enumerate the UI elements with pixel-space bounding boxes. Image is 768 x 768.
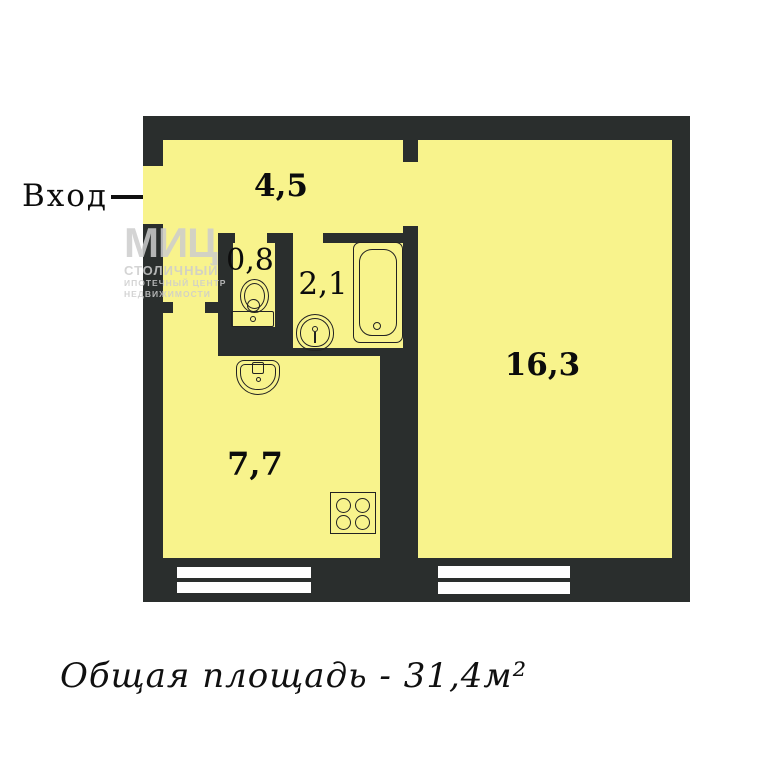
room-area-label-toilet: 0,8: [221, 246, 279, 276]
wall-top: [143, 116, 690, 140]
room-area-label-kitchen: 7,7: [215, 448, 295, 480]
wall-right: [672, 116, 690, 602]
window-kitchen: [177, 582, 311, 593]
kitchen-sink-tap-icon: [252, 362, 264, 374]
room-area-label-hallway: 4,5: [241, 171, 321, 202]
window-kitchen: [177, 567, 311, 578]
wall-left-above-entrance: [143, 140, 163, 166]
room-area-label-bathroom: 2,1: [292, 269, 354, 300]
toilet-tank-icon: [250, 316, 256, 322]
wall-bottom: [143, 558, 690, 602]
kitchen-sink-drain-icon: [256, 377, 261, 382]
bathroom-sink-tap-icon: [312, 326, 318, 332]
room-area-label-living: 16,3: [500, 350, 585, 381]
window-living: [438, 566, 570, 578]
stove-icon: [330, 492, 376, 534]
bathtub-drain-icon: [373, 322, 381, 330]
wall-kitchen-right: [380, 349, 403, 558]
wall-kitchen-door-jamb-right: [205, 302, 218, 313]
wall-toilet-bottom: [233, 327, 275, 356]
wall-living-left: [403, 226, 418, 558]
wall-living-door-jamb: [403, 140, 418, 162]
wall-kitchen-door-jamb-left: [163, 302, 173, 313]
wall-left-below-entrance: [143, 224, 163, 558]
bathroom-sink-tap-icon: [314, 332, 316, 343]
entrance-label: Вход: [22, 178, 108, 214]
floor-plan: Вход: [0, 0, 768, 768]
window-living: [438, 582, 570, 594]
total-area-caption: Общая площадь - 31,4м²: [60, 656, 527, 696]
